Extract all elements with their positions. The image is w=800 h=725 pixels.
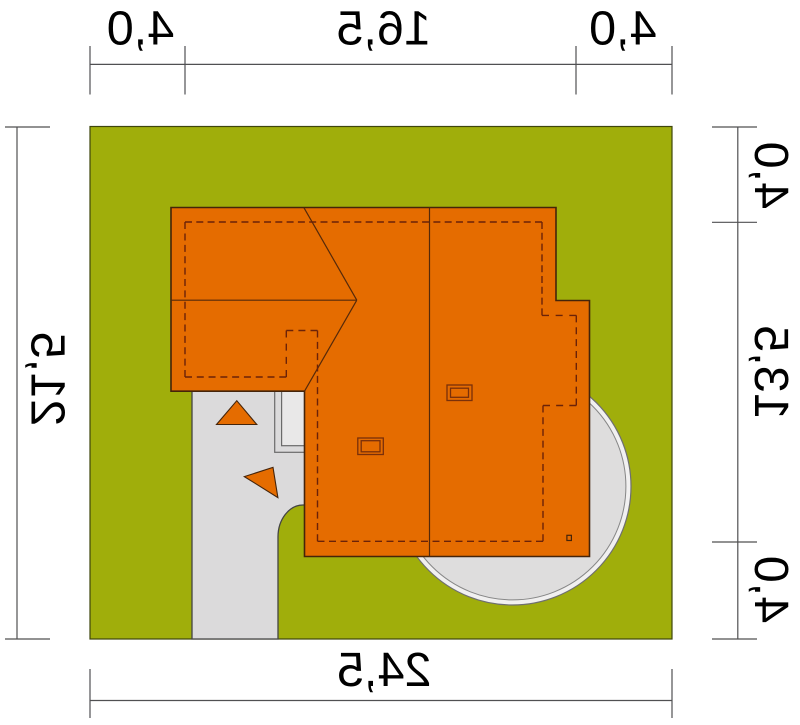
svg-text:4,0: 4,0: [744, 556, 798, 624]
svg-text:24,5: 24,5: [337, 643, 432, 697]
svg-text:4,0: 4,0: [107, 2, 175, 56]
svg-text:4,0: 4,0: [744, 142, 798, 210]
svg-text:21,5: 21,5: [21, 332, 75, 427]
svg-text:16,5: 16,5: [336, 2, 431, 56]
svg-text:4,0: 4,0: [589, 2, 657, 56]
svg-text:13,5: 13,5: [744, 325, 798, 420]
